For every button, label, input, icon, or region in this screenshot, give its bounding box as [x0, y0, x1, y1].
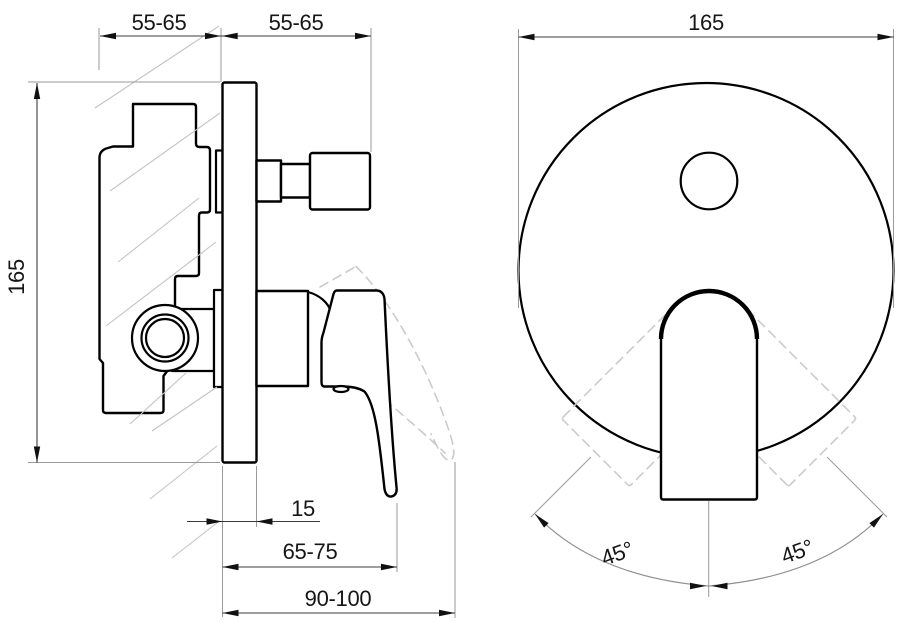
lower-flange: [214, 290, 223, 387]
dim-label-lever-projection: 65-75: [283, 539, 338, 564]
dim-label-plate-thickness: 15: [291, 496, 315, 521]
dim-total-projection: 90-100: [223, 462, 456, 618]
diverter-knob-front: [681, 153, 738, 210]
side-view: 55-65 55-65 165 15 65-75: [4, 10, 455, 618]
lever-base: [257, 291, 309, 386]
knob-stem: [281, 164, 310, 198]
dim-label-total-projection: 90-100: [305, 586, 372, 611]
lever-side: [322, 291, 397, 497]
lever-cap-dome: [308, 292, 331, 312]
lever-front: [661, 291, 757, 500]
dim-label-depth-behind-wall: 55-65: [132, 10, 187, 35]
knob-collar: [257, 161, 282, 202]
dim-label-height: 165: [4, 259, 29, 295]
lever-underside-detail: [334, 386, 349, 392]
dim-label-plate-diameter: 165: [688, 10, 724, 35]
front-view: 165 45° 45°: [519, 10, 894, 597]
diverter-knob-side: [257, 153, 371, 210]
mixer-installation-drawing: 55-65 55-65 165 15 65-75: [0, 0, 900, 622]
dim-label-depth-in-front: 55-65: [269, 10, 324, 35]
technical-drawing-page: 55-65 55-65 165 15 65-75: [0, 0, 900, 622]
dim-label-angle-left: 45°: [598, 536, 637, 571]
wall-plate-edge: [223, 83, 257, 463]
knob-cap: [310, 153, 370, 210]
